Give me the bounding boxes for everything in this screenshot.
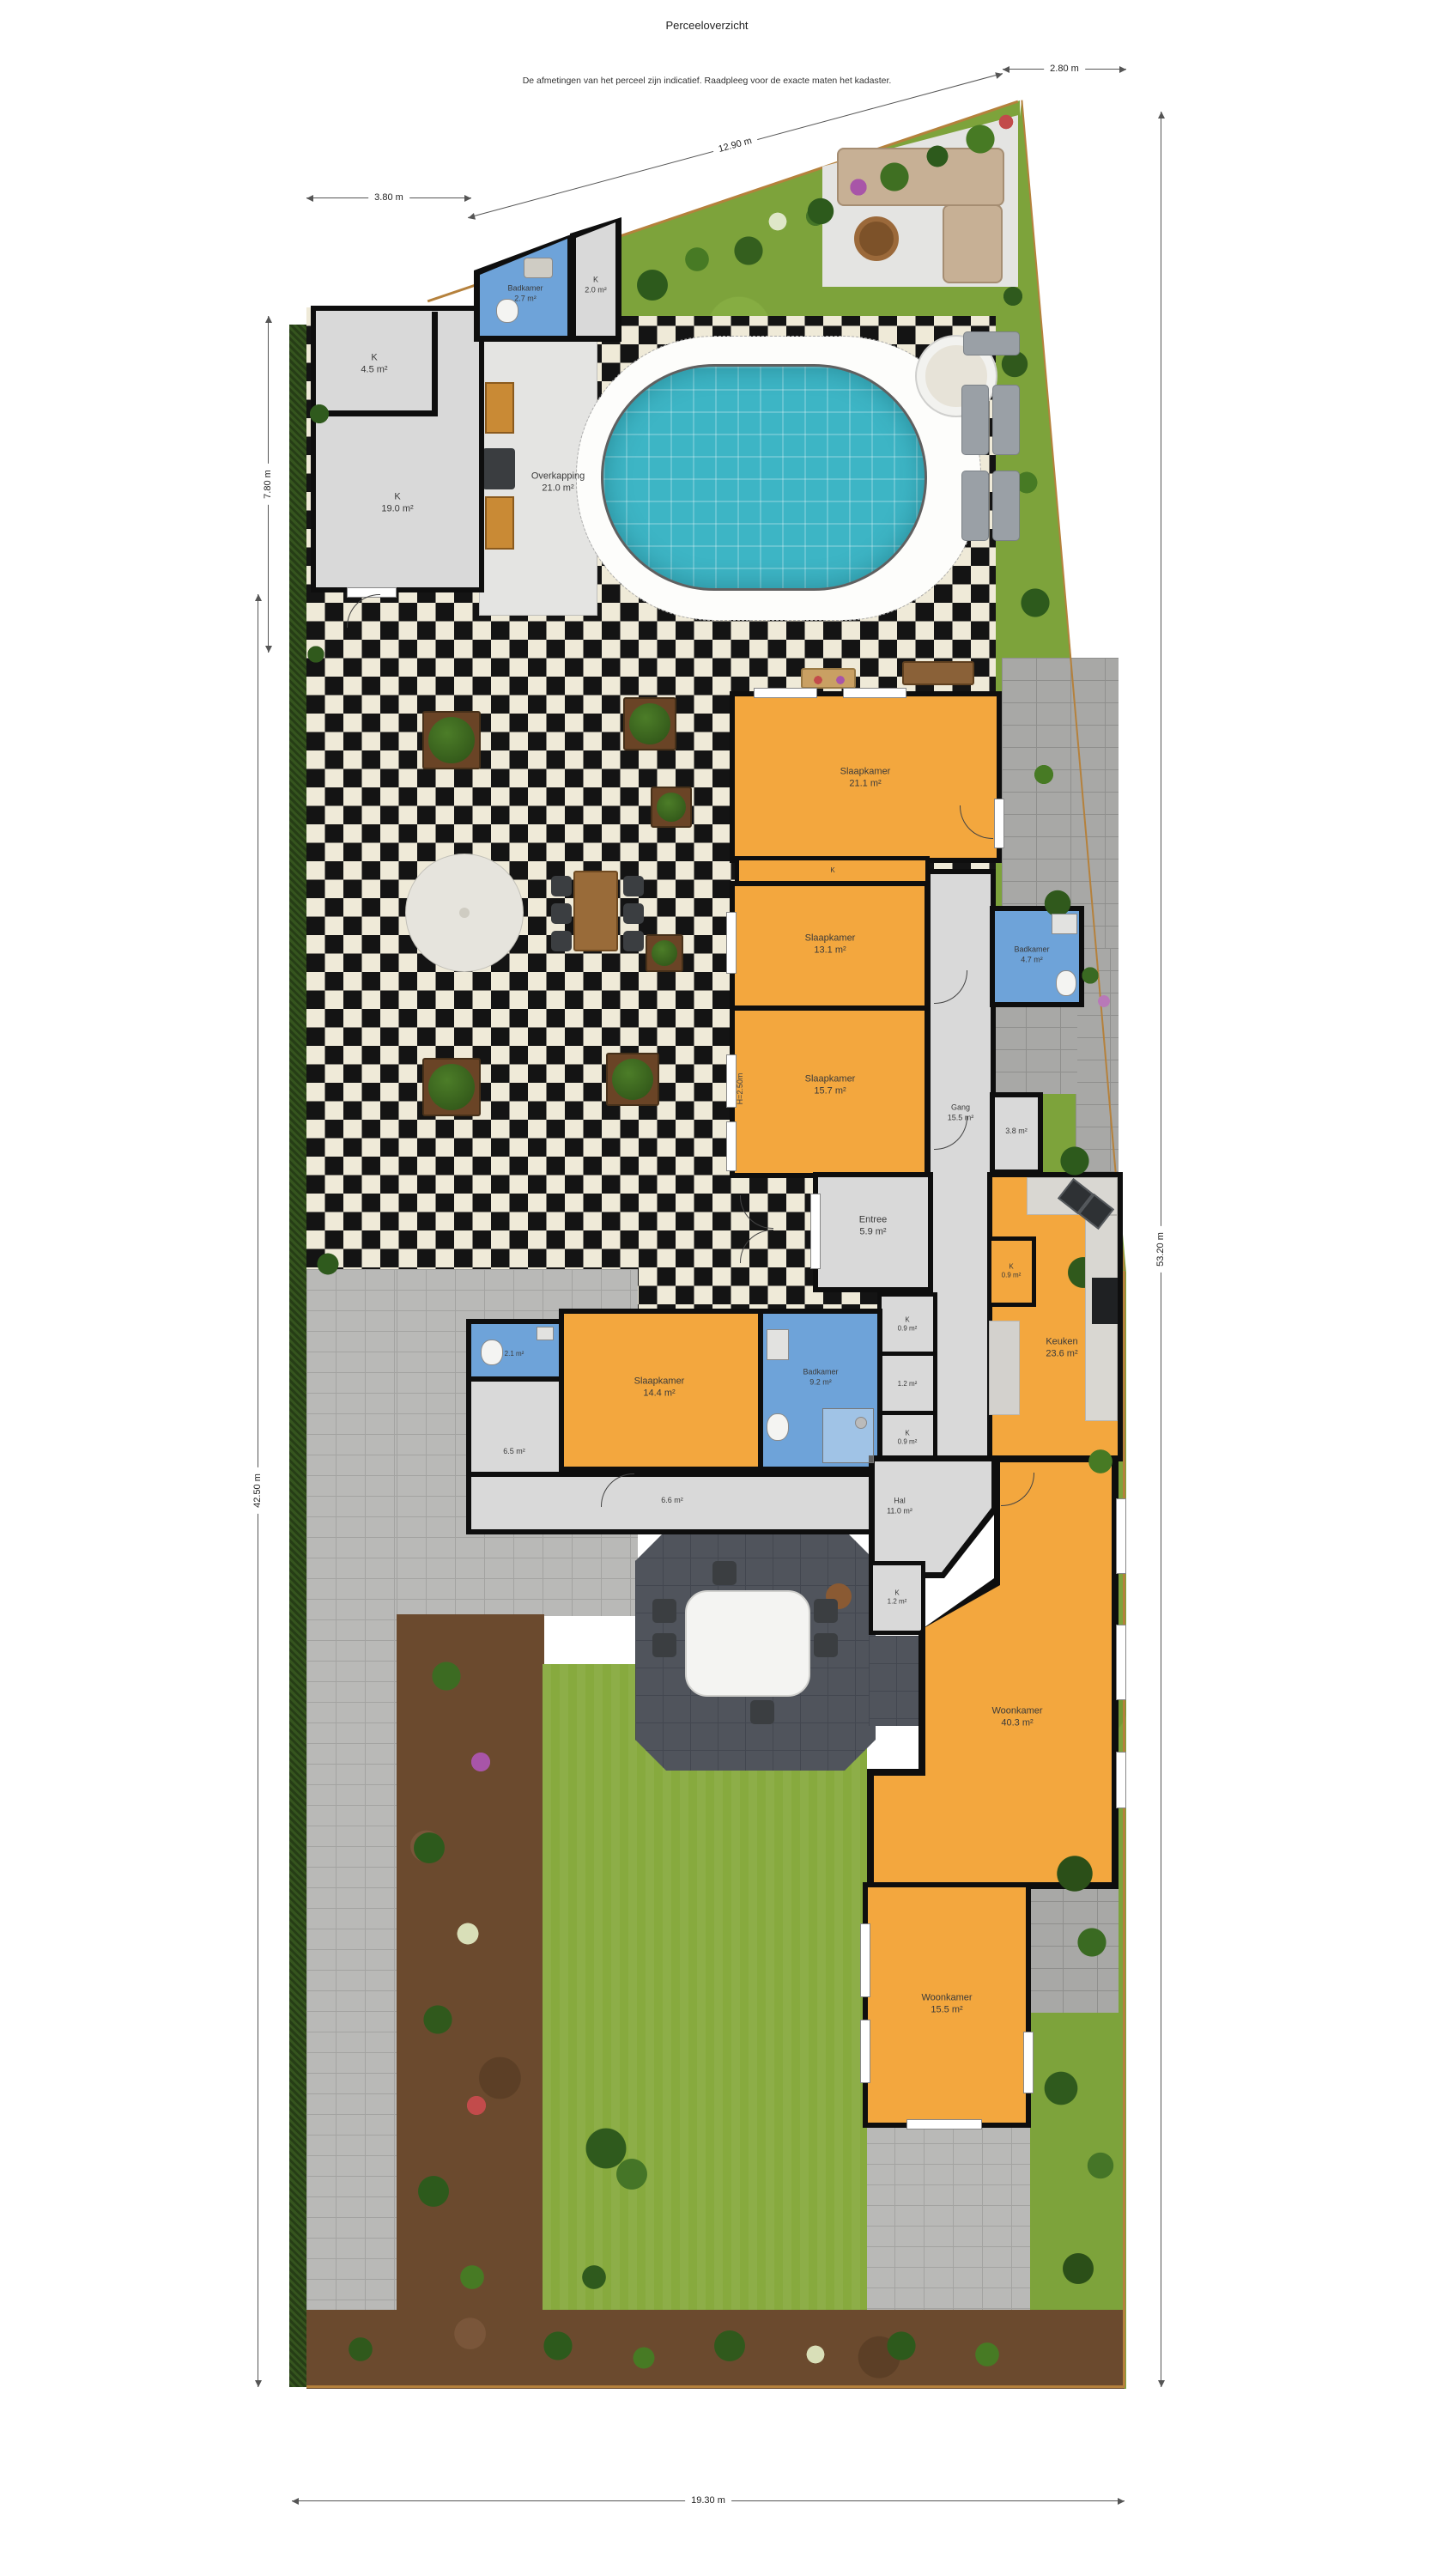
patio-circle-center [459, 908, 470, 918]
planter-box [623, 697, 676, 750]
sofa-table [854, 216, 899, 261]
shed-partition-h [317, 410, 438, 416]
fence-bottom [306, 2385, 1125, 2388]
room-label-slaapkamer-21-1: Slaapkamer21.1 m² [840, 766, 891, 791]
kitchen-stove-icon [1092, 1278, 1118, 1324]
room-label-kast-1-2: K1.2 m² [888, 1589, 907, 1607]
dimension-left-lower: 42.50 m [258, 594, 258, 2387]
planter-box [422, 711, 481, 769]
dining-chair [712, 1561, 737, 1585]
planter-box [646, 934, 683, 972]
room-label-kast-boven: K [830, 866, 834, 875]
toilet-icon [767, 1413, 789, 1441]
dimension-right: 53.20 m [1161, 112, 1161, 2387]
window [1116, 1752, 1126, 1808]
pool-lounger [961, 385, 989, 455]
dining-chair [814, 1599, 838, 1623]
room-label-hal: Hal11.0 m² [887, 1496, 912, 1516]
shed-partition-v [432, 312, 438, 416]
shower-icon [822, 1408, 874, 1463]
window [726, 1121, 737, 1171]
window [1023, 2032, 1034, 2093]
room-label-keuken: Keuken23.6 m² [1046, 1336, 1077, 1361]
room-label-badkamer-9-2: Badkamer9.2 m² [803, 1367, 838, 1387]
flowerbed-bottom [306, 2310, 1125, 2389]
toilet-icon [481, 1340, 503, 1365]
planter-box [422, 1058, 481, 1116]
room-hal [869, 1455, 997, 1578]
dimension-top-right: 2.80 m [1003, 69, 1126, 70]
page-subtitle: De afmetingen van het perceel zijn indic… [203, 76, 1210, 86]
terrace-south [865, 2123, 1030, 2313]
door-to-path [994, 799, 1004, 848]
dining-patio-notch [869, 1636, 919, 1726]
garden-chair [551, 903, 572, 924]
room-label-ruimte-6-5: 6.5 m² [503, 1447, 525, 1457]
room-label-kast-4-5: K4.5 m² [361, 352, 387, 377]
shower-head-icon [855, 1417, 867, 1429]
window [726, 912, 737, 974]
garden-chair [623, 903, 644, 924]
room-label-woonkamer-40-3: Woonkamer40.3 m² [991, 1705, 1042, 1730]
kitchen-cabinet [989, 1321, 1020, 1415]
room-label-badkamer-4-7: Badkamer4.7 m² [1014, 945, 1049, 964]
window [1116, 1625, 1126, 1700]
room-label-slaapkamer-14-4: Slaapkamer14.4 m² [634, 1376, 685, 1400]
fence-right [1123, 1271, 1125, 2387]
bar-cabinet-top [485, 382, 514, 434]
room-label-badkamer-boven: Badkamer2.7 m² [507, 283, 543, 303]
dining-chair [652, 1599, 676, 1623]
dining-chair [814, 1633, 838, 1657]
dimension-left-upper: 7.80 m [268, 316, 269, 653]
room-label-gang: Gang15.5 m² [948, 1103, 974, 1122]
dining-table [685, 1590, 810, 1697]
dimension-top-left: 3.80 m [306, 197, 471, 198]
bar-grill [482, 448, 515, 489]
flowerbed-left [397, 1614, 544, 2387]
room-label-kast-19-0: K19.0 m² [381, 491, 413, 516]
planter-table [801, 668, 856, 689]
sofa-top [837, 148, 1004, 206]
swimming-pool [601, 364, 927, 591]
room-label-kast-0-9-a: K0.9 m² [898, 1316, 918, 1334]
room-label-kast-keuken: K0.9 m² [1002, 1263, 1022, 1281]
ceiling-height-note: H=2.50m [736, 1073, 744, 1105]
room-label-toilet-2-1: 2.1 m² [505, 1350, 524, 1358]
toilet-icon [1056, 970, 1076, 996]
washbasin-icon [1052, 914, 1077, 934]
garden-table [573, 871, 618, 951]
stone-path-alcove [991, 1005, 1077, 1094]
room-label-overkapping: Overkapping21.0 m² [531, 471, 585, 495]
pool-lounger [961, 471, 989, 541]
garden-chair [623, 931, 644, 951]
room-label-woonkamer-15-5: Woonkamer15.5 m² [921, 1992, 972, 2017]
room-label-kast-0-9-b: K0.9 m² [898, 1430, 918, 1448]
sofa-side [943, 204, 1003, 283]
room-label-slaapkamer-13-1: Slaapkamer13.1 m² [805, 933, 856, 957]
dimension-bottom: 19.30 m [292, 2500, 1125, 2501]
window [754, 688, 817, 698]
washbasin-icon [537, 1327, 554, 1340]
room-shed [311, 306, 484, 592]
room-label-ruimte-6-6: 6.6 m² [661, 1496, 683, 1506]
window [1116, 1498, 1126, 1574]
garden-chair [551, 931, 572, 951]
window [843, 688, 906, 698]
room-label-kast-2-0: K2.0 m² [585, 275, 607, 295]
bar-cabinet-bottom [485, 496, 514, 550]
garden-chair [623, 876, 644, 896]
hedge-left [289, 325, 306, 2387]
window [906, 2119, 982, 2129]
washbasin-icon [767, 1329, 789, 1360]
room-label-entree: Entree5.9 m² [859, 1214, 887, 1239]
pool-lounger [963, 331, 1020, 355]
garden-bench [902, 661, 974, 685]
dining-chair [652, 1633, 676, 1657]
page-title: Perceeloverzicht [289, 19, 1125, 32]
pool-lounger [992, 385, 1020, 455]
planter-box [651, 787, 692, 828]
dining-chair [750, 1700, 774, 1724]
window [860, 1923, 870, 1997]
window [860, 2020, 870, 2083]
room-label-slaapkamer-15-7: Slaapkamer15.7 m² [805, 1073, 856, 1098]
room-ruimte-6-5 [466, 1376, 564, 1483]
planter-box [606, 1053, 659, 1106]
pool-lounger [992, 471, 1020, 541]
room-label-ruimte-1-2: 1.2 m² [898, 1380, 918, 1388]
path-left [306, 1269, 397, 2387]
washbasin-icon [524, 258, 553, 278]
room-label-berging-3-8: 3.8 m² [1005, 1127, 1028, 1137]
garden-chair [551, 876, 572, 896]
entree-door [810, 1194, 821, 1269]
